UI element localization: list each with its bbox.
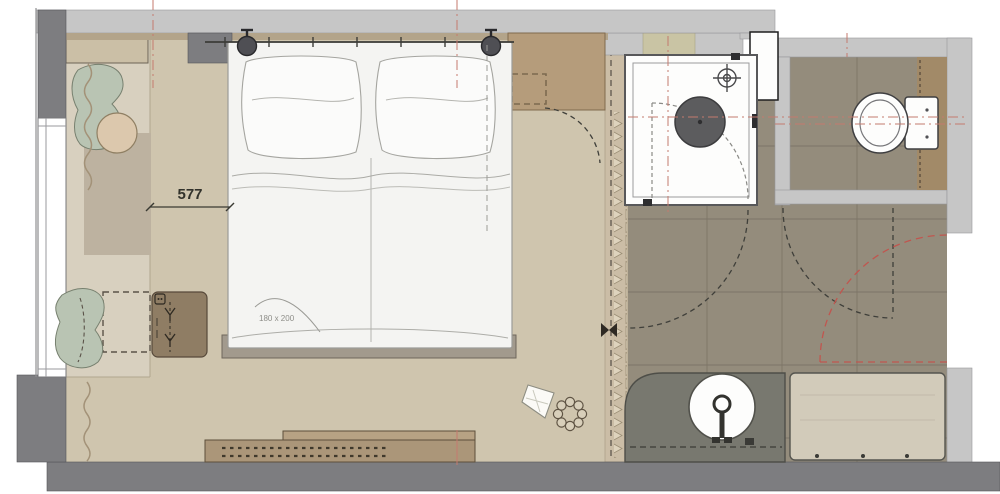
vanity bbox=[625, 373, 785, 462]
pillow-right bbox=[376, 56, 496, 159]
bed: 180 x 200 bbox=[222, 42, 516, 358]
wardrobe bbox=[508, 33, 605, 110]
bay-shelf bbox=[66, 38, 148, 63]
hinge bbox=[643, 199, 652, 206]
pillow-left bbox=[242, 56, 362, 159]
nightstand bbox=[152, 292, 207, 357]
bed-size-label: 180 x 200 bbox=[259, 314, 295, 323]
shower-niche bbox=[643, 33, 695, 55]
bench bbox=[790, 373, 945, 460]
wc-top-wall bbox=[775, 38, 970, 57]
shower bbox=[625, 53, 757, 206]
bottom-left-wall-block bbox=[17, 375, 66, 462]
wc-ledge bbox=[775, 190, 947, 204]
floor-plan: 180 x 200 bbox=[0, 0, 1000, 494]
right-wall-upper bbox=[947, 38, 972, 233]
right-wall-lower bbox=[947, 368, 972, 463]
hinge bbox=[731, 53, 740, 60]
dimension-label: 577 bbox=[177, 186, 202, 203]
left-wall-pier bbox=[38, 10, 66, 118]
shower-door-handle bbox=[752, 114, 757, 128]
top-wall bbox=[36, 10, 775, 33]
bottom-wall bbox=[47, 462, 1000, 491]
floor-plan-drawing: 180 x 200 bbox=[0, 0, 1000, 494]
side-table bbox=[97, 113, 137, 153]
